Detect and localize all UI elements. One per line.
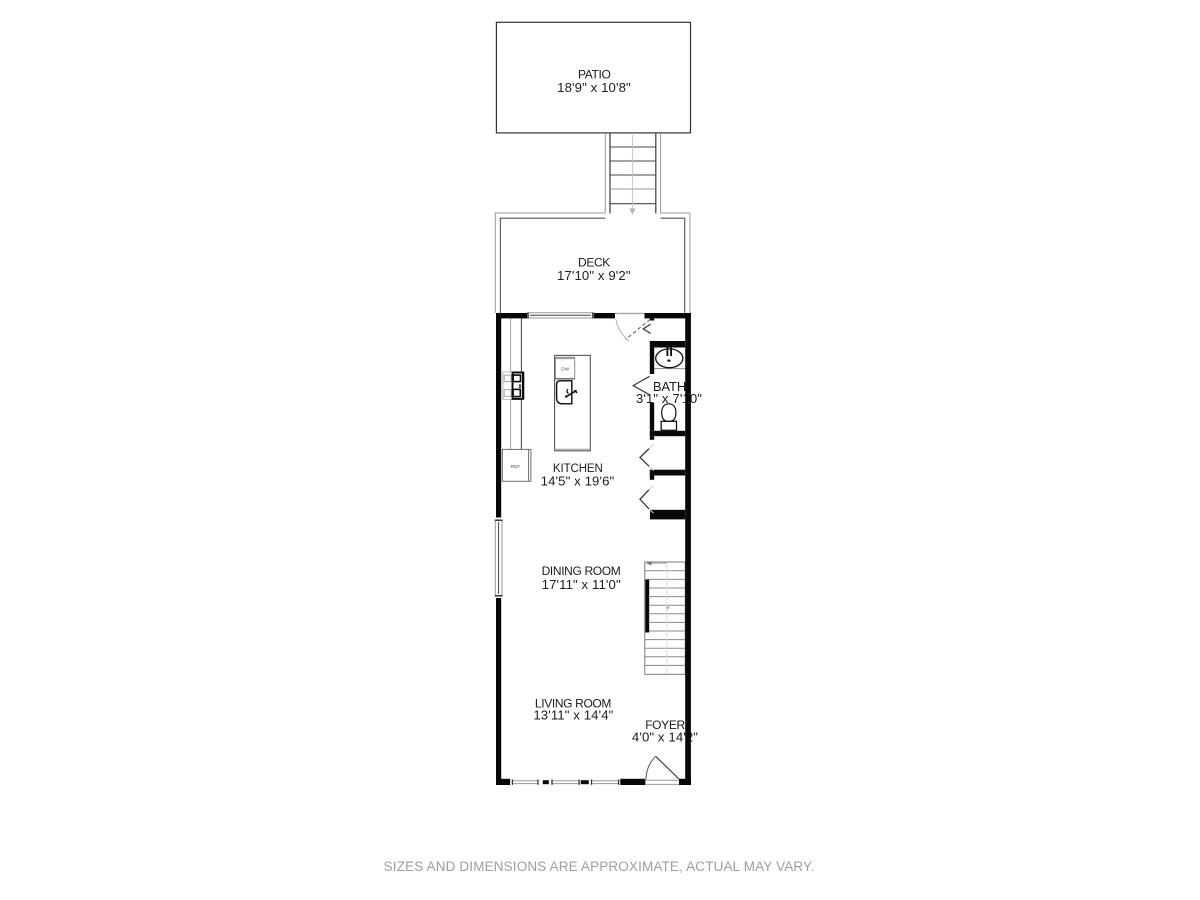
- svg-text:17'11" x 11'0": 17'11" x 11'0": [542, 577, 621, 592]
- svg-text:DW: DW: [561, 366, 570, 371]
- svg-text:14'5" x 19'6": 14'5" x 19'6": [541, 474, 615, 489]
- svg-text:DINING ROOM: DINING ROOM: [542, 564, 621, 578]
- svg-text:17'10" x 9'2": 17'10" x 9'2": [557, 268, 631, 283]
- svg-text:REF: REF: [511, 464, 520, 469]
- svg-text:18'9" x 10'8": 18'9" x 10'8": [557, 80, 631, 95]
- svg-text:SIZES AND DIMENSIONS ARE APPRO: SIZES AND DIMENSIONS ARE APPROXIMATE, AC…: [384, 859, 815, 874]
- svg-text:13'11" x 14'4": 13'11" x 14'4": [533, 708, 613, 723]
